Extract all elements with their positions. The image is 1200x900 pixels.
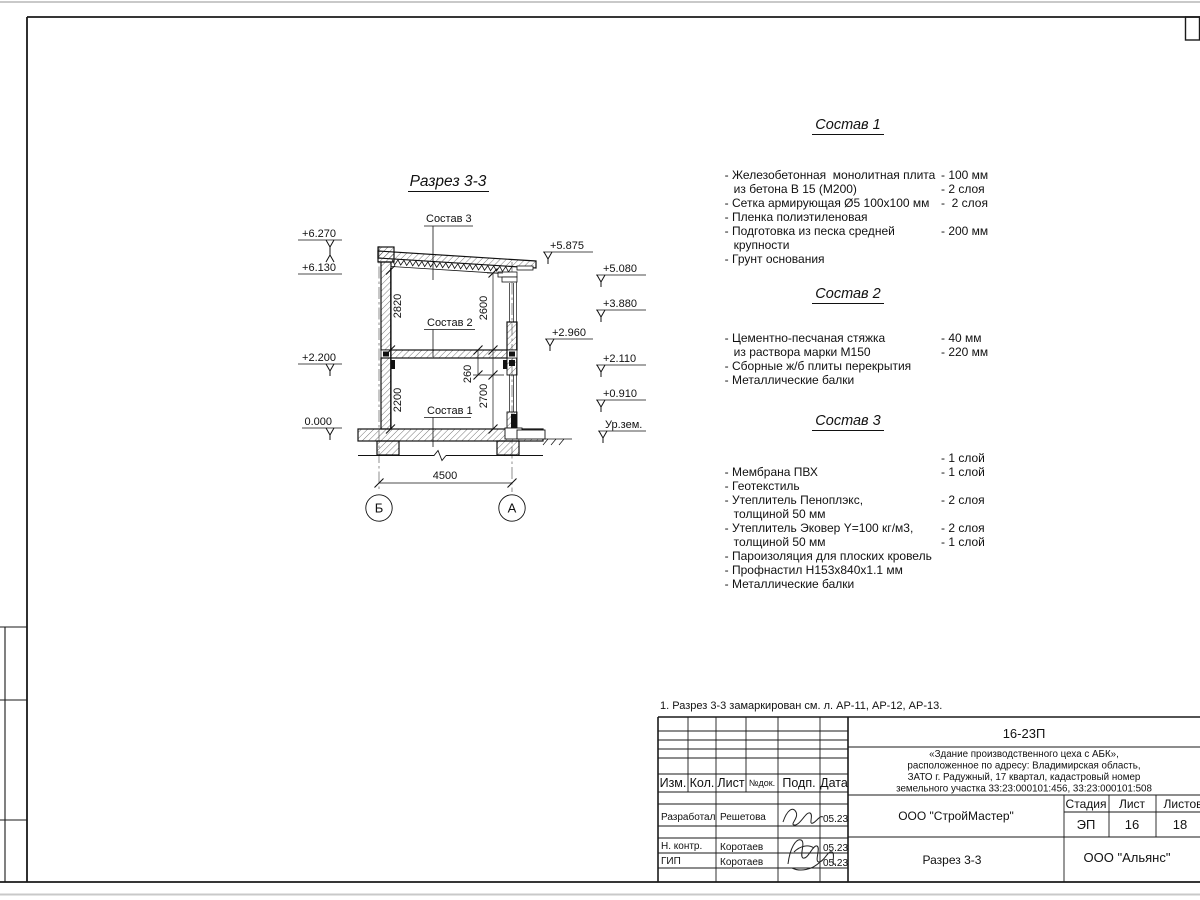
right-pilaster-mid: [507, 322, 517, 350]
drawing-sheet: Разрез 3-3: [0, 0, 1200, 900]
col-kol: Кол.: [690, 776, 715, 790]
signer-date: 05.23: [823, 843, 848, 854]
svg-text:+6.130: +6.130: [302, 262, 336, 274]
sheet-note: 1. Разрез 3-3 замаркирован см. л. АР-11,…: [660, 700, 942, 712]
composition-row: - Металлические балки: [698, 563, 998, 577]
signer-role: Н. контр.: [661, 841, 702, 852]
sheet-title: Разрез 3-3: [923, 853, 982, 867]
composition-title: Состав 3: [698, 413, 998, 430]
elevation-mark: +6.130: [298, 250, 342, 274]
composition-row: - Цементно-песчаная стяжка: [698, 317, 998, 331]
composition-row: - Пленка полиэтиленовая - 2 слоя: [698, 196, 998, 210]
sheet-graphics: Разрез 3-3: [0, 0, 1200, 900]
right-beam-end: [509, 360, 515, 366]
layer-thickness: - 1 слой: [941, 465, 985, 479]
svg-text:«Здание производственного цеха: «Здание производственного цеха с АБК»,: [929, 749, 1119, 760]
col-data: Дата: [820, 776, 848, 790]
doc-number: 16-23П: [1003, 726, 1046, 741]
left-wall-upper: [381, 262, 391, 350]
composition-list-2: Состав 2 - Цементно-песчаная стяжка из р…: [698, 286, 998, 373]
elevation-mark: +2.960: [545, 327, 593, 351]
signature: [783, 809, 823, 825]
svg-text:+2.110: +2.110: [603, 353, 636, 365]
signer-role: ГИП: [661, 856, 681, 867]
customer: ООО "Альянс": [1084, 850, 1171, 865]
composition-row: - Геотекстиль - 1 слой: [698, 465, 998, 479]
composition-row: толщиной 50 мм - 2 слоя: [698, 493, 998, 507]
elevation-marks-right: +5.080 +3.880 +2.110 +0.910 Ур.зем.: [596, 263, 646, 443]
elevation-mark: +5.080: [596, 263, 646, 287]
signer-date: 05.23: [823, 814, 848, 825]
svg-text:+6.270: +6.270: [302, 228, 336, 240]
stage-value: ЭП: [1077, 817, 1096, 832]
layer-thickness: - 1 слой: [941, 535, 985, 549]
svg-text:0.000: 0.000: [304, 416, 332, 428]
composition-row: - Металлические балки: [698, 359, 998, 373]
blind-area: [517, 430, 545, 439]
layer-thickness: - 2 слоя: [941, 521, 985, 535]
corner-stamp-box: [1186, 17, 1200, 40]
layer-name: - Металлические балки: [725, 373, 855, 387]
svg-text:+5.875: +5.875: [550, 240, 584, 252]
composition-rows: - Мембрана ПВХ - 1 слой - Геотекстиль - …: [698, 451, 998, 577]
svg-text:расположенное по адресу: Влади: расположенное по адресу: Владимирская об…: [907, 761, 1140, 772]
col-podp: Подп.: [782, 776, 815, 790]
elevation-mark: 0.000: [302, 416, 342, 440]
elevation-marks-left: +6.270 +6.130 +2.200 0.000: [298, 228, 342, 440]
layer-thickness: - 40 мм: [941, 331, 982, 345]
slab-anchor-right: [503, 360, 507, 369]
signer-name: Решетова: [720, 812, 766, 823]
layer-thickness: - 220 мм: [941, 345, 988, 359]
col-list: Лист: [717, 776, 744, 790]
axis-label-left: Б: [375, 501, 384, 516]
sheets-total: 18: [1173, 817, 1187, 832]
layer-thickness: - 200 мм: [941, 224, 988, 238]
composition-row: - Пароизоляция для плоских кровель - 1 с…: [698, 535, 998, 549]
layer-thickness: - 2 слоя: [941, 493, 985, 507]
col-izm: Изм.: [660, 776, 687, 790]
composition-row: - Утеплитель Эковер Y=100 кг/м3,: [698, 507, 998, 521]
elevation-mark: +2.110: [596, 353, 646, 377]
composition-title: Состав 1: [698, 117, 998, 134]
layer-thickness: - 100 мм: [941, 168, 988, 182]
elevation-marks-mid: +5.875 +2.960: [543, 240, 593, 351]
layer-ref-roof: Состав 3: [426, 213, 472, 225]
svg-text:+2.200: +2.200: [302, 352, 336, 364]
composition-rows: - Цементно-песчаная стяжка из раствора м…: [698, 317, 998, 373]
dim-span: 4500: [433, 470, 457, 482]
signer-role: Разработал: [661, 811, 716, 823]
elevation-mark: +0.910: [596, 388, 646, 412]
sheet-number: 16: [1125, 817, 1139, 832]
svg-text:+5.080: +5.080: [603, 263, 637, 275]
sheets-label: Листов: [1164, 797, 1200, 811]
title-block: Изм. Кол. Лист №док. Подп. Дата Разработ…: [658, 717, 1200, 882]
composition-list-1: Состав 1 - Железобетонная монолитная пли…: [698, 117, 998, 252]
dim-h2-left: 2820: [392, 294, 404, 318]
elevation-mark: +3.880: [596, 298, 646, 322]
composition-title: Состав 2: [698, 286, 998, 303]
dim-slab: 260: [462, 365, 474, 383]
signer-name: Коротаев: [720, 842, 763, 853]
signer-name: Коротаев: [720, 857, 763, 868]
stage-label: Стадия: [1066, 797, 1107, 811]
structure: [358, 247, 545, 455]
roof-edge-plate: [517, 266, 533, 270]
axis-label-right: А: [508, 501, 517, 516]
composition-row: - Сетка армирующая Ø5 100х100 мм - 2 сло…: [698, 182, 998, 196]
dim-h2-right: 2600: [478, 296, 490, 320]
svg-text:земельного участка 33:23:00010: земельного участка 33:23:000101:456, 33:…: [896, 784, 1152, 795]
axis-bubbles: [366, 495, 525, 521]
composition-row: - Железобетонная монолитная плита: [698, 154, 998, 168]
elevation-mark: Ур.зем.: [598, 419, 646, 443]
composition-row: - Подготовка из песка средней: [698, 210, 998, 224]
sheet-label: Лист: [1119, 797, 1146, 811]
composition-row: - Грунт основания: [698, 238, 998, 252]
layer-name: - Металлические балки: [725, 577, 855, 591]
composition-row: - Мембрана ПВХ - 1 слой: [698, 451, 998, 465]
composition-row: из бетона В 15 (М200) - 100 мм: [698, 168, 998, 182]
layer-thickness: - 2 слоя: [941, 182, 985, 196]
layer-ref-floor: Состав 2: [427, 317, 473, 329]
composition-list-3: Состав 3 - Мембрана ПВХ - 1 слой - Геоте…: [698, 413, 998, 577]
view-title: Разрез 3-3: [410, 173, 487, 190]
svg-text:+2.960: +2.960: [552, 327, 586, 339]
svg-text:+0.910: +0.910: [603, 388, 637, 400]
dim-h1-left: 2200: [392, 388, 404, 412]
foundation-left: [377, 441, 399, 455]
svg-text:+3.880: +3.880: [603, 298, 637, 310]
dim-h1-right: 2700: [478, 384, 490, 408]
project-description: «Здание производственного цеха с АБК», р…: [896, 749, 1152, 795]
layer-name: - Грунт основания: [725, 252, 825, 266]
left-wall-lower: [381, 358, 391, 429]
signer-date: 05.23: [823, 858, 848, 869]
composition-row: крупности - 200 мм: [698, 224, 998, 238]
elevation-mark: +5.875: [543, 240, 593, 264]
cornice-step-2: [502, 277, 517, 282]
composition-rows: - Железобетонная монолитная плита из бет…: [698, 154, 998, 252]
svg-text:Ур.зем.: Ур.зем.: [605, 419, 642, 431]
col-ndok: №док.: [749, 778, 775, 788]
foundation-right: [497, 441, 519, 455]
layer-thickness: - 2 слоя: [941, 196, 988, 210]
elevation-mark: +2.200: [298, 352, 342, 376]
contractor: ООО "СтройМастер": [898, 809, 1014, 823]
composition-row: - Профнастил Н153х840х1.1 мм: [698, 549, 998, 563]
layer-ref-ground: Состав 1: [427, 405, 473, 417]
slab-anchor-left: [391, 360, 395, 369]
section-drawing: Разрез 3-3: [298, 173, 646, 521]
composition-row: - Сборные ж/б плиты перекрытия - 220 мм: [698, 345, 998, 359]
composition-row: толщиной 50 мм - 2 слоя: [698, 521, 998, 535]
layer-thickness: - 1 слой: [941, 451, 985, 465]
composition-row: - Утеплитель Пеноплэкс,: [698, 479, 998, 493]
svg-text:ЗАТО г. Радужный, 17 квартал,: ЗАТО г. Радужный, 17 квартал, кадастровы…: [908, 772, 1141, 783]
elevation-mark: +6.270: [298, 228, 342, 252]
left-margin-table: [0, 627, 27, 882]
composition-row: из раствора марки М150 - 40 мм: [698, 331, 998, 345]
